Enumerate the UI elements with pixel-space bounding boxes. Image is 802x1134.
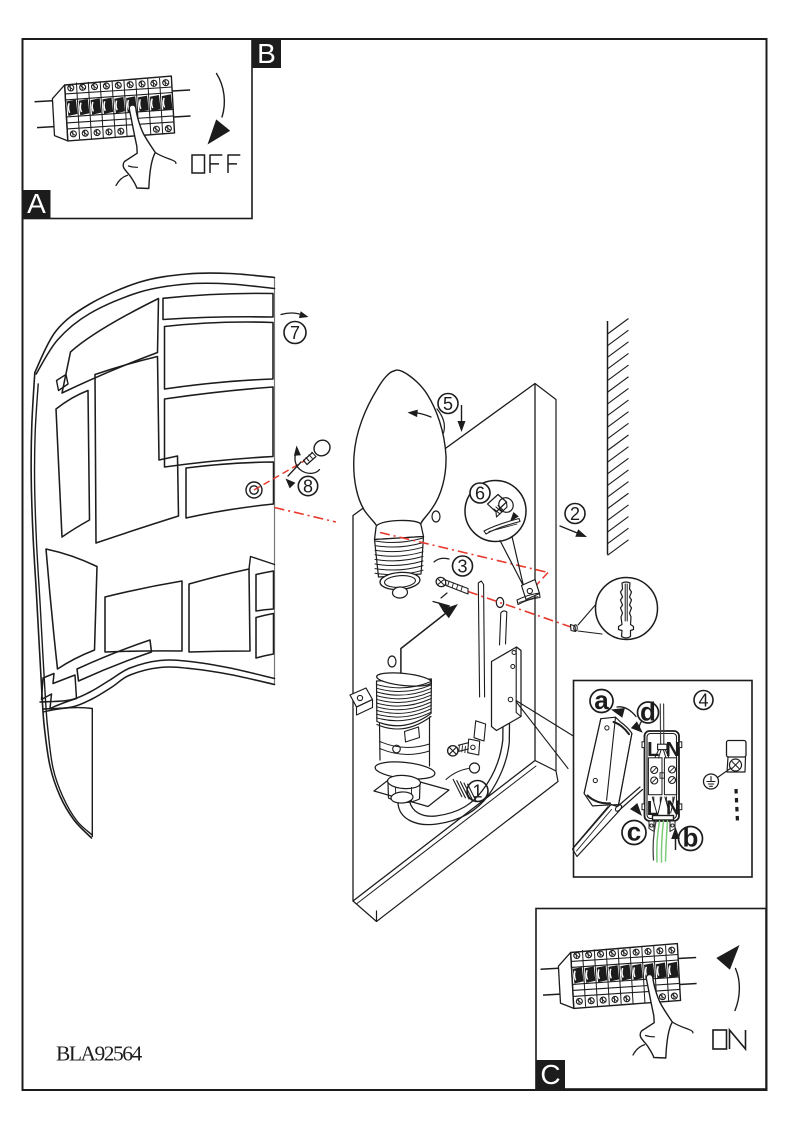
svg-text:7: 7: [290, 323, 300, 343]
svg-text:4: 4: [698, 690, 708, 710]
svg-text:BLA92564: BLA92564: [56, 1042, 143, 1066]
svg-text:b: b: [683, 822, 699, 852]
svg-text:8: 8: [303, 476, 313, 496]
svg-text:c: c: [627, 816, 641, 846]
svg-text:6: 6: [475, 484, 485, 504]
svg-text:d: d: [640, 696, 656, 726]
svg-text:A: A: [27, 188, 46, 219]
svg-text:C: C: [540, 1059, 560, 1090]
svg-text:2: 2: [570, 504, 580, 524]
svg-text:a: a: [594, 685, 609, 715]
svg-text:3: 3: [457, 556, 467, 576]
svg-text:5: 5: [443, 394, 453, 414]
svg-text:1: 1: [472, 781, 482, 801]
svg-text:B: B: [257, 38, 276, 69]
